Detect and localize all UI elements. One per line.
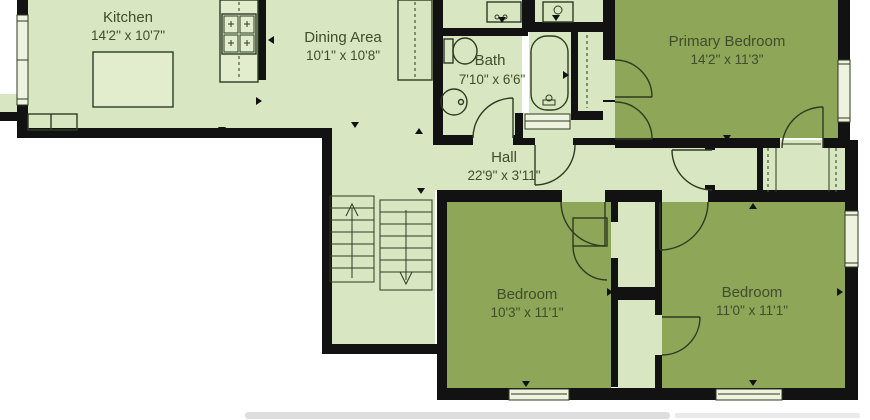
closet-a xyxy=(715,145,757,195)
dims-hall: 22'9" x 3'11" xyxy=(467,168,540,183)
closet-mid-lower xyxy=(618,300,655,388)
label-bath: Bath xyxy=(475,52,506,69)
dims-bedroom-right: 11'0" x 11'1" xyxy=(716,303,788,318)
dims-primary-bedroom: 14'2" x 11'3" xyxy=(690,52,763,67)
kitchen-island xyxy=(93,52,173,107)
window xyxy=(838,60,850,122)
closet-b xyxy=(763,145,845,195)
laundry-niche-1 xyxy=(443,0,522,28)
label-bedroom-middle: Bedroom xyxy=(497,286,558,303)
label-primary-bedroom: Primary Bedroom xyxy=(669,33,786,50)
window xyxy=(17,15,28,105)
dims-bath: 7'10" x 6'6" xyxy=(459,72,526,87)
floor-plan-drawing: Kitchen 14'2" x 10'7" Dining Area 10'1" … xyxy=(0,0,870,420)
label-hall: Hall xyxy=(491,149,517,166)
label-kitchen: Kitchen xyxy=(103,9,153,26)
window xyxy=(716,389,782,400)
photo-edge-artifact xyxy=(245,412,860,419)
dims-dining-area: 10'1" x 10'8" xyxy=(306,48,380,63)
window xyxy=(509,389,569,400)
window xyxy=(845,211,858,267)
linen-closet xyxy=(578,32,603,111)
floor-plan: Kitchen 14'2" x 10'7" Dining Area 10'1" … xyxy=(0,0,870,420)
closet-mid-upper xyxy=(618,202,655,287)
stove xyxy=(220,0,258,82)
cased-opening xyxy=(525,114,570,129)
room-primary-bedroom xyxy=(615,0,838,138)
label-bedroom-right: Bedroom xyxy=(722,284,783,301)
dims-bedroom-middle: 10'3" x 11'1" xyxy=(490,305,563,320)
stair-landing xyxy=(332,126,435,354)
laundry-niche-2 xyxy=(529,0,603,22)
entry-stoop xyxy=(0,94,17,112)
label-dining-area: Dining Area xyxy=(304,29,382,46)
dims-kitchen: 14'2" x 10'7" xyxy=(91,28,165,43)
